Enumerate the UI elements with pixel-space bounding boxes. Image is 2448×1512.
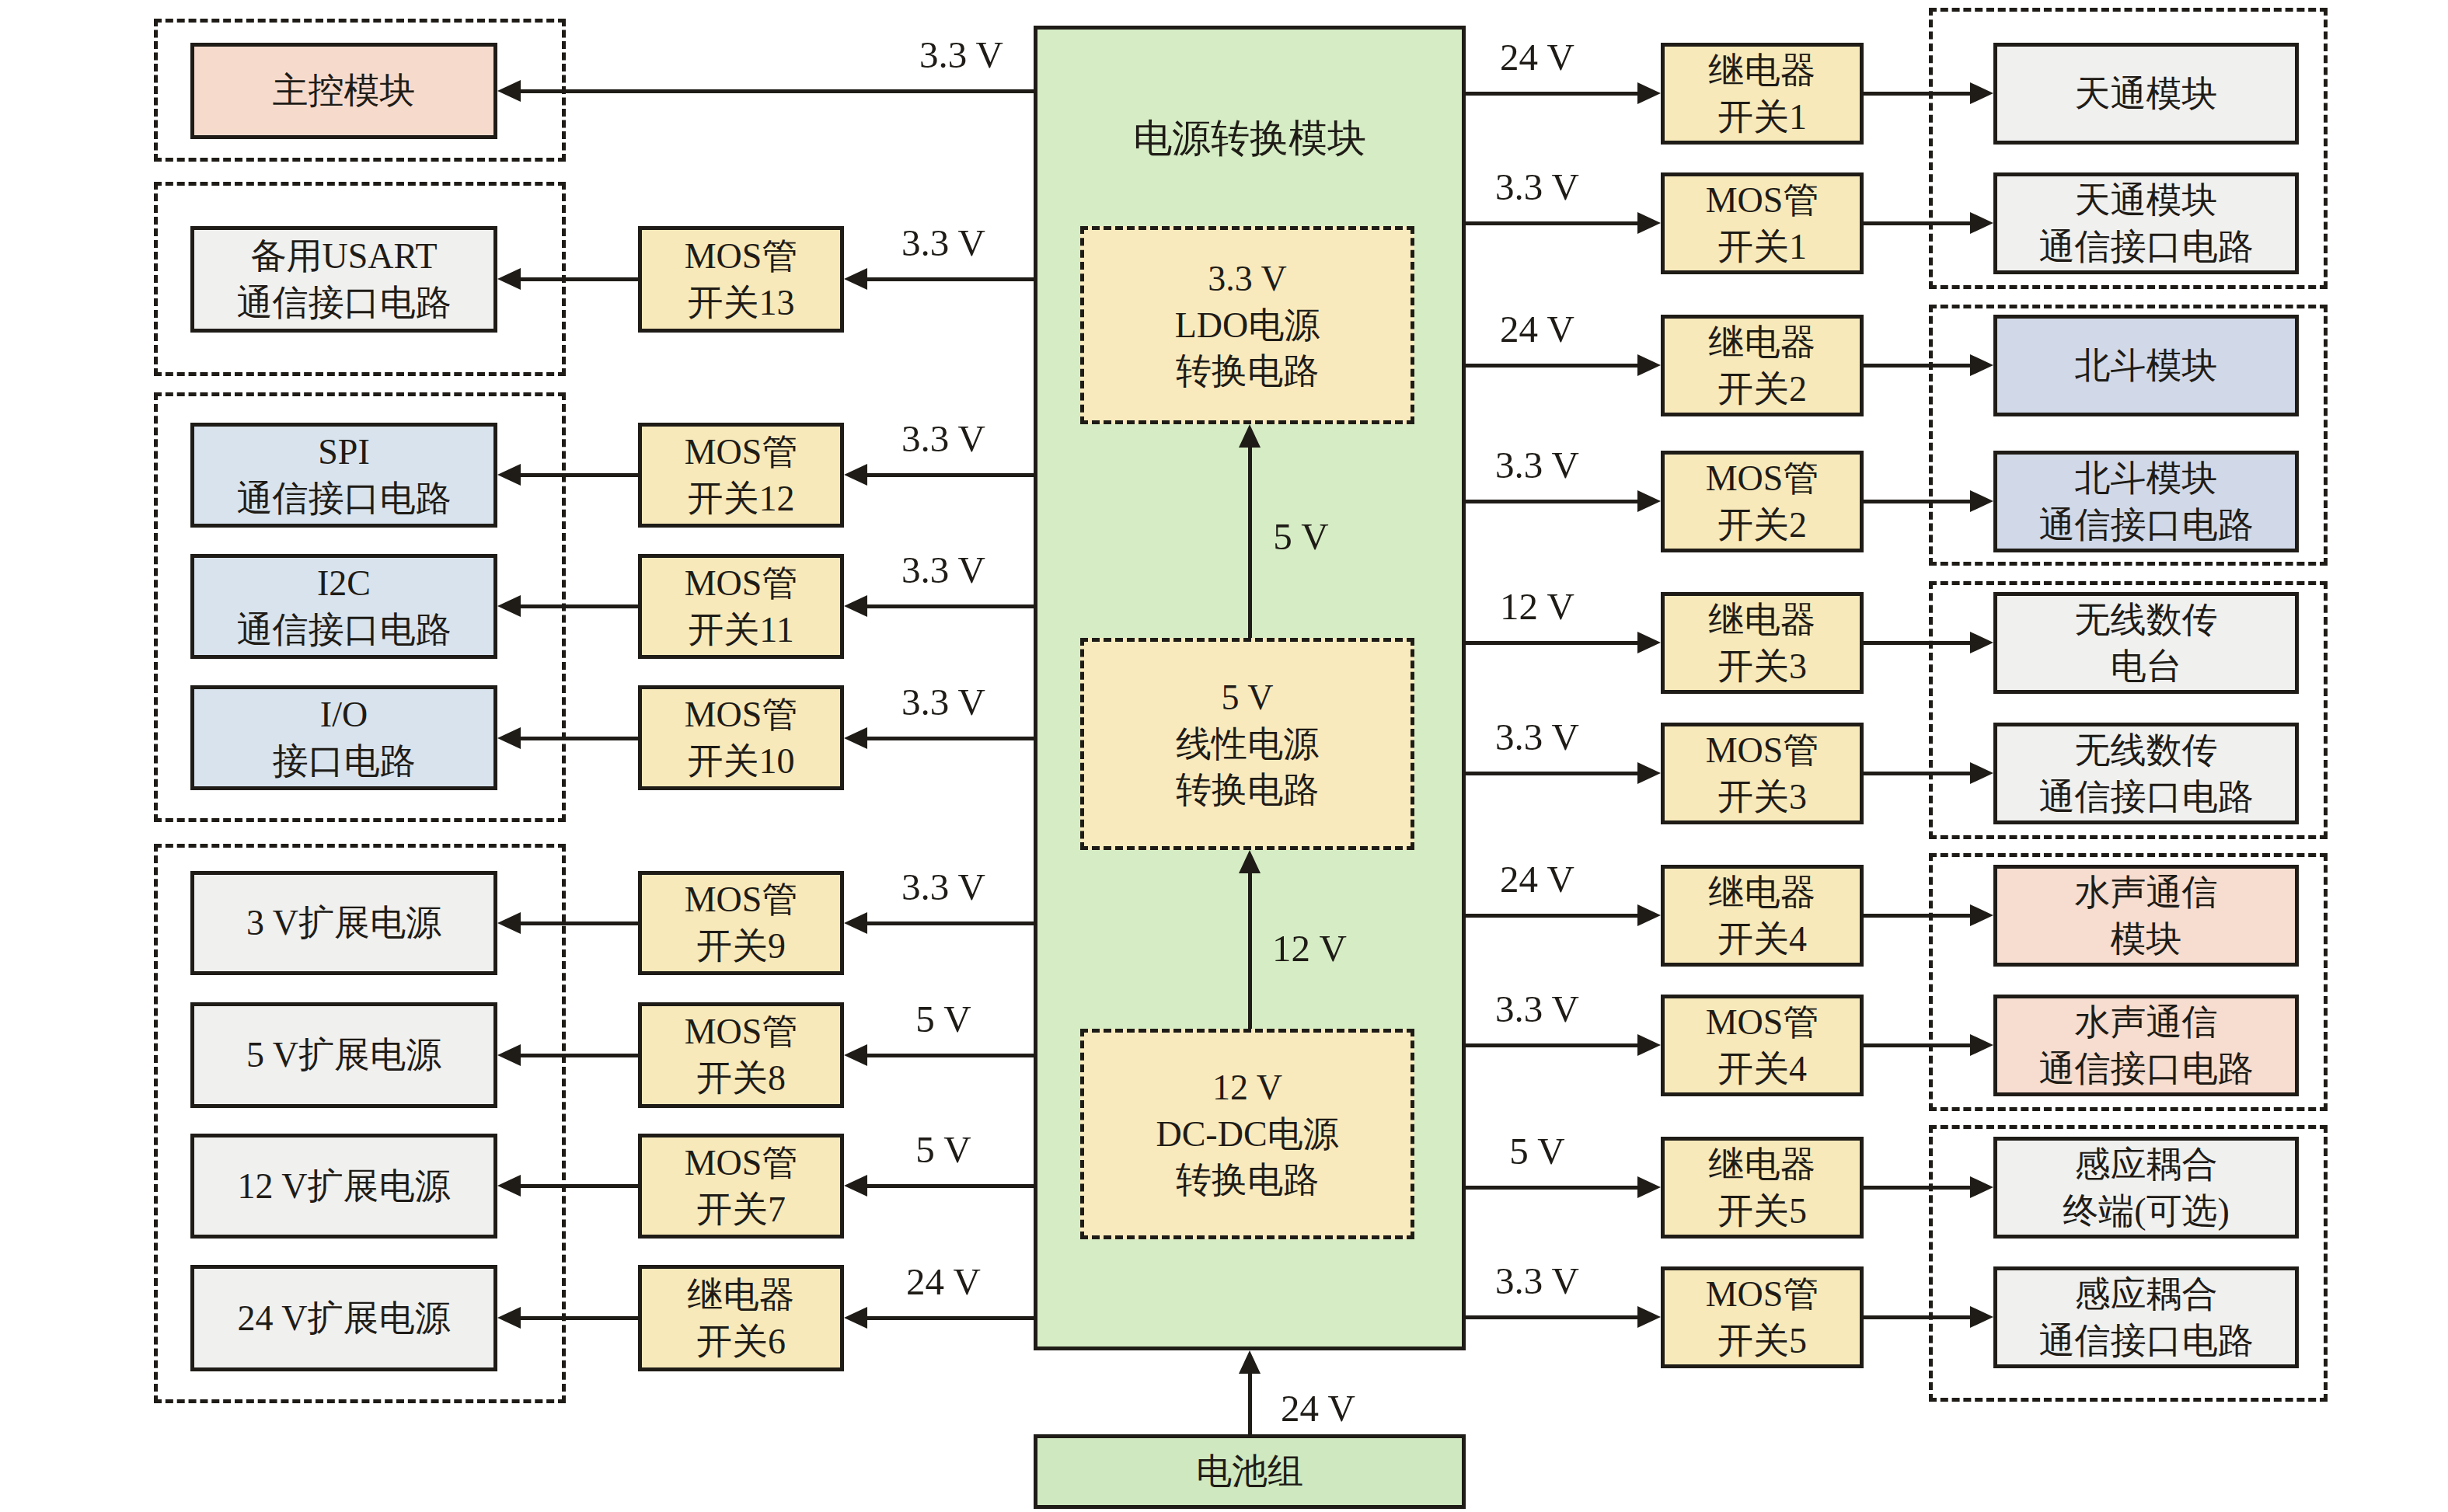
arrowhead-feed-mos3 [1637, 762, 1661, 784]
mos-switch-13: MOS管 开关13 [638, 226, 844, 333]
expansion-12v: 12 V扩展电源 [190, 1134, 497, 1239]
arrowhead-mos1-to-tiantong-if [1970, 212, 1993, 234]
dcdc-12v-converter: 12 V DC-DC电源 转换电路 [1080, 1029, 1414, 1239]
edge-feed-mos4 [1466, 1043, 1639, 1047]
arrowhead-mos8-to-5v [497, 1044, 521, 1066]
mos-switch-4: MOS管 开关4 [1661, 995, 1864, 1096]
ldo-3v3-converter: 3.3 V LDO电源 转换电路 [1080, 226, 1414, 424]
mos-switch-1: MOS管 开关1 [1661, 172, 1864, 274]
label-dcdc-to-lin5v: 12 V [1272, 926, 1347, 970]
edge-feed-relay6 [866, 1316, 1034, 1320]
label-feed-mos12: 3.3 V [901, 416, 985, 461]
edge-battery-to-module [1248, 1372, 1252, 1434]
arrowhead-relay5-to-inductive [1970, 1176, 1993, 1198]
label-feed-relay3: 12 V [1500, 584, 1574, 629]
arrowhead-feed-mos13 [844, 268, 867, 290]
edge-feed-mos9 [866, 921, 1034, 925]
label-feed-relay2: 24 V [1500, 307, 1574, 351]
arrowhead-mos2-to-beidou-if [1970, 490, 1993, 512]
arrowhead-mos13-to-usart [497, 268, 521, 290]
expansion-3v: 3 V扩展电源 [190, 871, 497, 975]
edge-feed-relay5 [1466, 1186, 1639, 1190]
beidou-comm-interface: 北斗模块 通信接口电路 [1993, 451, 2299, 552]
label-lin5v-to-ldo: 5 V [1273, 514, 1328, 559]
label-feed-relay4: 24 V [1500, 857, 1574, 901]
arrowhead-relay2-to-beidou [1970, 354, 1993, 376]
edge-feed-main-control [519, 89, 1034, 93]
label-feed-mos3: 3.3 V [1495, 715, 1579, 759]
arrowhead-mos12-to-spi [497, 464, 521, 486]
edge-lin5v-to-ldo [1248, 446, 1252, 638]
label-feed-mos2: 3.3 V [1495, 443, 1579, 487]
relay-switch-2: 继电器 开关2 [1661, 315, 1864, 416]
label-feed-mos13: 3.3 V [901, 221, 985, 265]
edge-mos11-to-i2c [519, 604, 638, 608]
arrowhead-feed-mos5 [1637, 1306, 1661, 1328]
edge-mos1-to-tiantong-if [1864, 221, 1972, 225]
arrowhead-relay6-to-24v [497, 1307, 521, 1329]
expansion-24v: 24 V扩展电源 [190, 1265, 497, 1371]
expansion-5v: 5 V扩展电源 [190, 1002, 497, 1108]
mos-switch-9: MOS管 开关9 [638, 871, 844, 975]
edge-mos13-to-usart [519, 277, 638, 281]
arrowhead-battery-to-module [1239, 1350, 1261, 1374]
mos-switch-2: MOS管 开关2 [1661, 451, 1864, 552]
wireless-comm-interface: 无线数传 通信接口电路 [1993, 723, 2299, 824]
label-feed-mos7: 5 V [915, 1127, 971, 1172]
label-feed-mos9: 3.3 V [901, 865, 985, 909]
edge-feed-mos12 [866, 473, 1034, 477]
label-feed-mos11: 3.3 V [901, 548, 985, 592]
mos-switch-5: MOS管 开关5 [1661, 1266, 1864, 1368]
edge-relay3-to-radio [1864, 641, 1972, 645]
label-feed-mos10: 3.3 V [901, 680, 985, 724]
arrowhead-feed-mos8 [844, 1044, 867, 1066]
inductive-terminal: 感应耦合 终端(可选) [1993, 1137, 2299, 1239]
edge-mos12-to-spi [519, 473, 638, 477]
edge-feed-mos3 [1466, 772, 1639, 775]
arrowhead-feed-mos12 [844, 464, 867, 486]
arrowhead-lin5v-to-ldo [1239, 424, 1261, 448]
edge-feed-mos10 [866, 737, 1034, 740]
edge-relay6-to-24v [519, 1316, 638, 1320]
relay-switch-3: 继电器 开关3 [1661, 592, 1864, 694]
arrowhead-feed-main-control [497, 80, 521, 102]
spi-interface: SPI 通信接口电路 [190, 423, 497, 528]
arrowhead-feed-mos10 [844, 727, 867, 749]
arrowhead-feed-mos9 [844, 912, 867, 934]
relay-switch-4: 继电器 开关4 [1661, 865, 1864, 967]
relay-switch-1: 继电器 开关1 [1661, 43, 1864, 145]
inductive-comm-interface: 感应耦合 通信接口电路 [1993, 1266, 2299, 1368]
edge-mos10-to-io [519, 737, 638, 740]
io-interface: I/O 接口电路 [190, 685, 497, 790]
edge-relay5-to-inductive [1864, 1186, 1972, 1190]
beidou-module: 北斗模块 [1993, 315, 2299, 416]
arrowhead-mos3-to-radio-if [1970, 762, 1993, 784]
edge-feed-mos1 [1466, 221, 1639, 225]
edge-feed-relay2 [1466, 364, 1639, 368]
arrowhead-mos10-to-io [497, 727, 521, 749]
edge-dcdc-to-lin5v [1248, 872, 1252, 1029]
arrowhead-relay4-to-acoustic [1970, 904, 1993, 926]
arrowhead-feed-relay3 [1637, 632, 1661, 653]
arrowhead-dcdc-to-lin5v [1239, 850, 1261, 873]
edge-relay2-to-beidou [1864, 364, 1972, 368]
mos-switch-7: MOS管 开关7 [638, 1134, 844, 1239]
edge-feed-relay3 [1466, 641, 1639, 645]
relay-switch-6: 继电器 开关6 [638, 1265, 844, 1371]
arrowhead-relay3-to-radio [1970, 632, 1993, 653]
edge-mos8-to-5v [519, 1054, 638, 1057]
edge-feed-relay4 [1466, 914, 1639, 918]
arrowhead-mos5-to-inductive-if [1970, 1306, 1993, 1328]
tiantong-module: 天通模块 [1993, 43, 2299, 145]
label-feed-mos1: 3.3 V [1495, 165, 1579, 209]
diagram-canvas: 3.3 V LDO电源 转换电路5 V 线性电源 转换电路12 V DC-DC电… [0, 0, 2448, 1512]
i2c-interface: I2C 通信接口电路 [190, 554, 497, 659]
label-battery-to-module: 24 V [1281, 1386, 1355, 1430]
edge-feed-mos5 [1466, 1315, 1639, 1319]
label-feed-mos5: 3.3 V [1495, 1259, 1579, 1303]
edge-feed-mos8 [866, 1054, 1034, 1057]
label-feed-relay6: 24 V [906, 1259, 981, 1304]
arrowhead-mos11-to-i2c [497, 595, 521, 617]
edge-mos4-to-acoustic-if [1864, 1043, 1972, 1047]
edge-mos3-to-radio-if [1864, 772, 1972, 775]
edge-mos5-to-inductive-if [1864, 1315, 1972, 1319]
edge-relay1-to-tiantong [1864, 92, 1972, 96]
edge-feed-mos13 [866, 277, 1034, 281]
edge-feed-mos7 [866, 1184, 1034, 1188]
arrowhead-feed-relay6 [844, 1307, 867, 1329]
mos-switch-11: MOS管 开关11 [638, 554, 844, 659]
power-conversion-module-title: 电源转换模块 [1133, 113, 1366, 165]
mos-switch-8: MOS管 开关8 [638, 1002, 844, 1108]
arrowhead-feed-mos7 [844, 1175, 867, 1197]
edge-feed-relay1 [1466, 92, 1639, 96]
arrowhead-feed-relay2 [1637, 354, 1661, 376]
wireless-radio: 无线数传 电台 [1993, 592, 2299, 694]
edge-feed-mos2 [1466, 500, 1639, 503]
battery-pack: 电池组 [1034, 1434, 1466, 1509]
acoustic-comm-interface: 水声通信 通信接口电路 [1993, 995, 2299, 1096]
edge-feed-mos11 [866, 604, 1034, 608]
edge-mos2-to-beidou-if [1864, 500, 1972, 503]
edge-mos9-to-3v [519, 921, 638, 925]
label-feed-mos8: 5 V [915, 997, 971, 1041]
arrowhead-feed-mos4 [1637, 1034, 1661, 1056]
edge-mos7-to-12v [519, 1184, 638, 1188]
mos-switch-10: MOS管 开关10 [638, 685, 844, 790]
label-feed-relay5: 5 V [1509, 1129, 1564, 1173]
edge-relay4-to-acoustic [1864, 914, 1972, 918]
mos-switch-3: MOS管 开关3 [1661, 723, 1864, 824]
arrowhead-mos9-to-3v [497, 912, 521, 934]
relay-switch-5: 继电器 开关5 [1661, 1137, 1864, 1239]
arrowhead-feed-mos2 [1637, 490, 1661, 512]
linear-5v-converter: 5 V 线性电源 转换电路 [1080, 638, 1414, 850]
arrowhead-mos7-to-12v [497, 1175, 521, 1197]
label-feed-main-control: 3.3 V [919, 33, 1003, 77]
arrowhead-feed-mos11 [844, 595, 867, 617]
backup-usart-interface: 备用USART 通信接口电路 [190, 226, 497, 333]
arrowhead-mos4-to-acoustic-if [1970, 1034, 1993, 1056]
arrowhead-feed-relay4 [1637, 904, 1661, 926]
label-feed-mos4: 3.3 V [1495, 987, 1579, 1031]
arrowhead-feed-relay5 [1637, 1176, 1661, 1198]
label-feed-relay1: 24 V [1500, 35, 1574, 79]
arrowhead-feed-mos1 [1637, 212, 1661, 234]
acoustic-module: 水声通信 模块 [1993, 865, 2299, 967]
tiantong-comm-interface: 天通模块 通信接口电路 [1993, 172, 2299, 274]
arrowhead-feed-relay1 [1637, 82, 1661, 104]
mos-switch-12: MOS管 开关12 [638, 423, 844, 528]
main-control-module: 主控模块 [190, 43, 497, 139]
arrowhead-relay1-to-tiantong [1970, 82, 1993, 104]
